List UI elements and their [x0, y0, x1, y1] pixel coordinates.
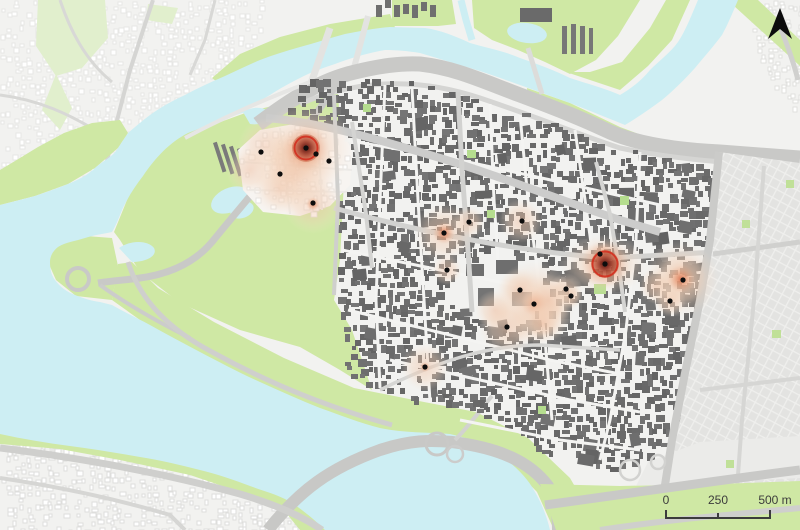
svg-text:0: 0 — [663, 493, 670, 507]
svg-text:250: 250 — [708, 493, 728, 507]
svg-text:500 m: 500 m — [758, 493, 791, 507]
